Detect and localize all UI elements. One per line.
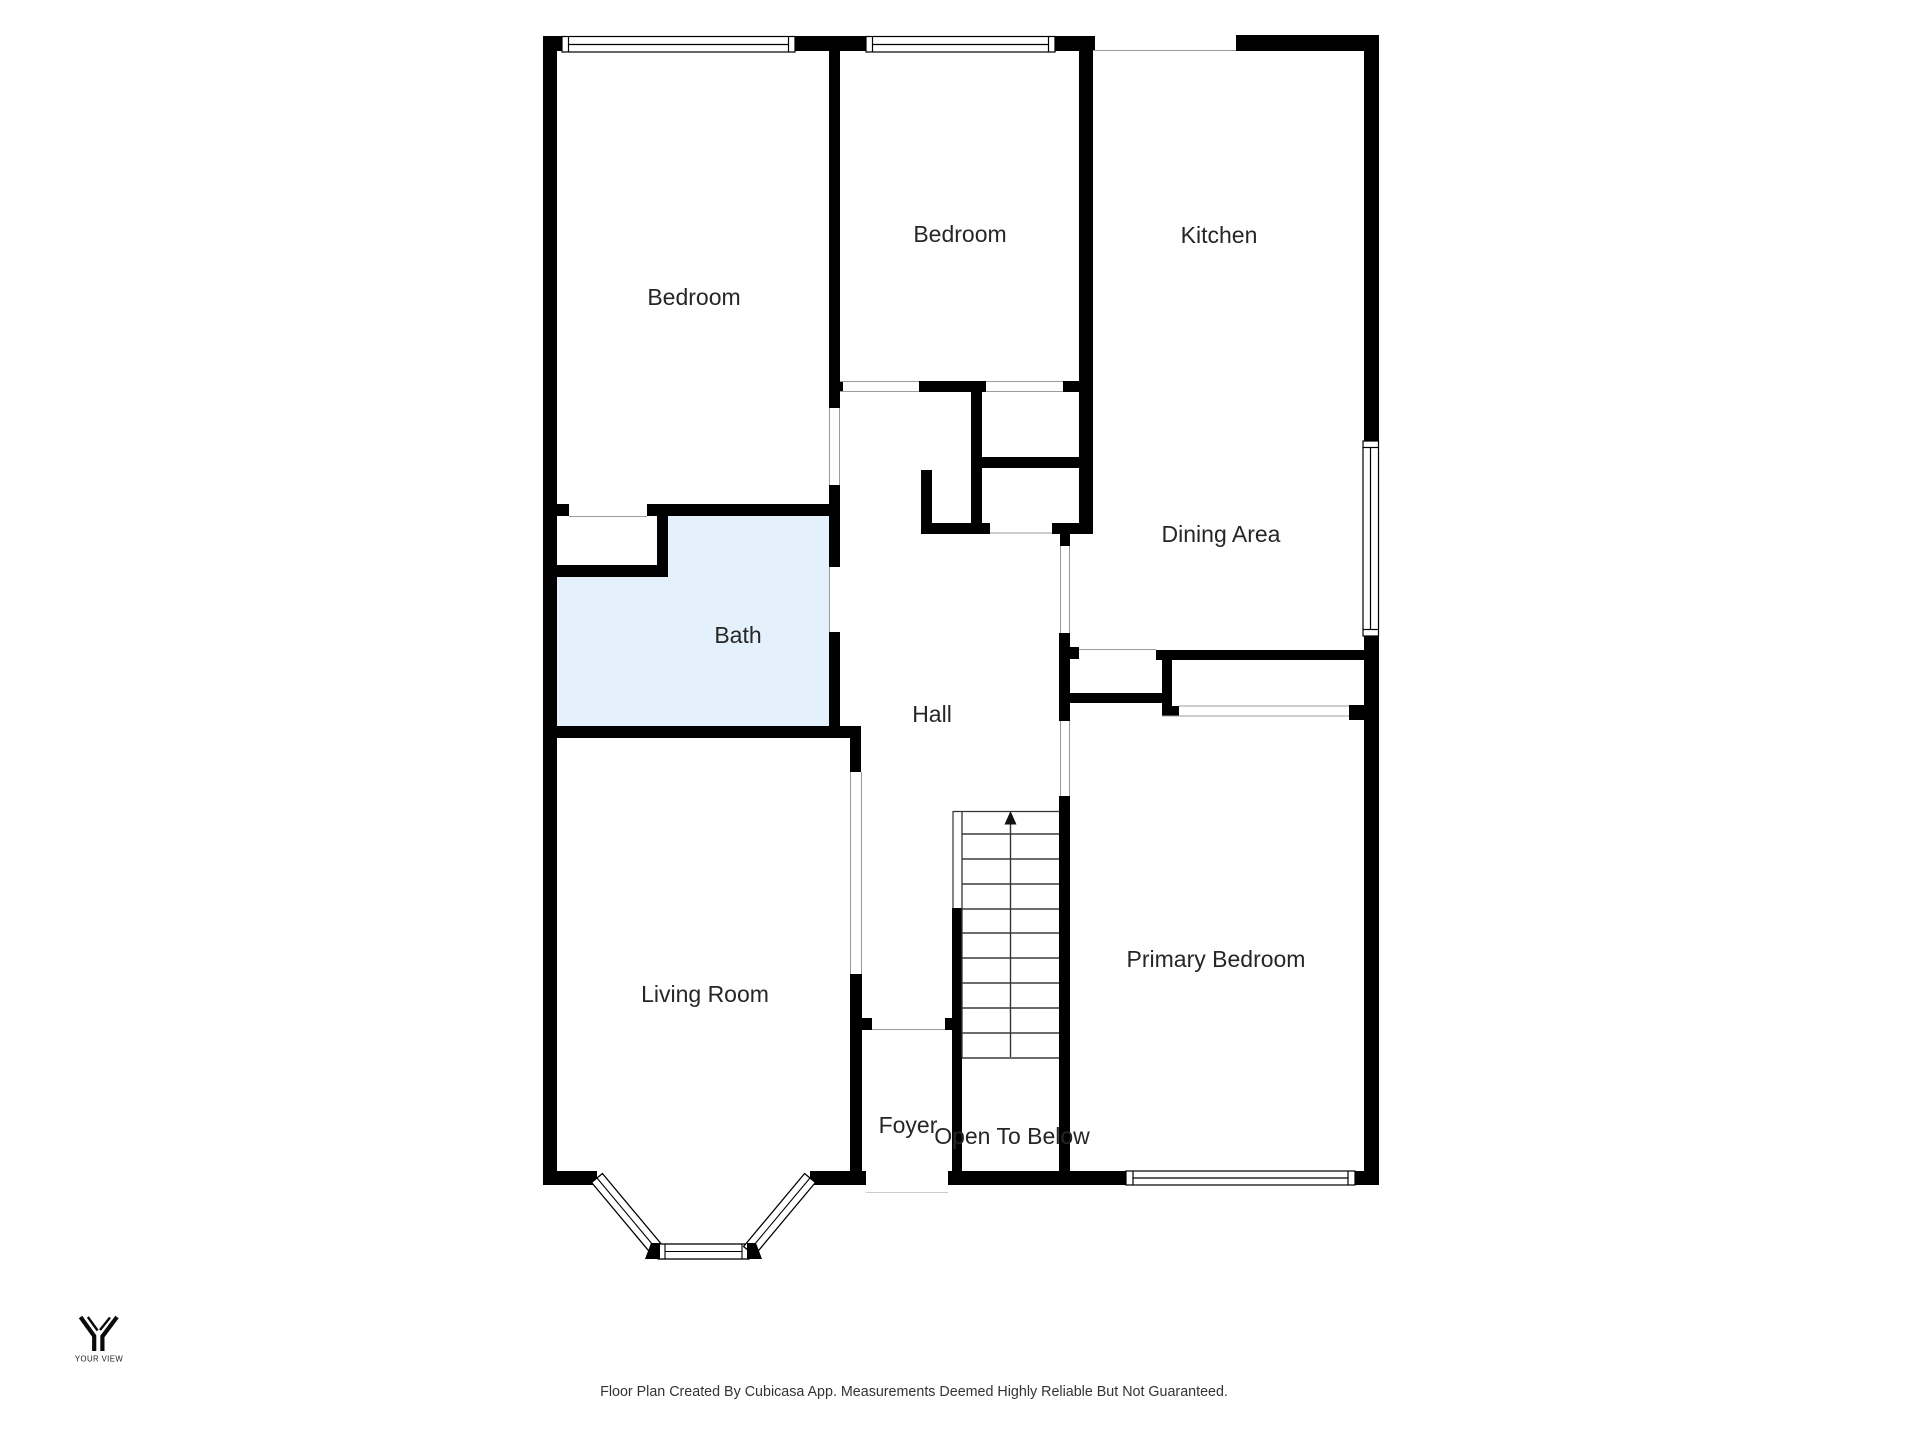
svg-text:Hall: Hall: [912, 701, 952, 727]
svg-text:Open To Below: Open To Below: [934, 1123, 1090, 1149]
svg-text:YOUR VIEW: YOUR VIEW: [75, 1355, 123, 1364]
svg-text:Bedroom: Bedroom: [913, 221, 1006, 247]
svg-text:Dining Area: Dining Area: [1162, 521, 1281, 547]
svg-text:Kitchen: Kitchen: [1181, 222, 1258, 248]
svg-text:Foyer: Foyer: [879, 1112, 938, 1138]
svg-text:Bath: Bath: [714, 622, 761, 648]
svg-text:Floor Plan Created By Cubicasa: Floor Plan Created By Cubicasa App. Meas…: [600, 1384, 1228, 1400]
svg-text:Bedroom: Bedroom: [647, 284, 740, 310]
svg-text:Living Room: Living Room: [641, 981, 769, 1007]
svg-text:Primary Bedroom: Primary Bedroom: [1127, 946, 1306, 972]
